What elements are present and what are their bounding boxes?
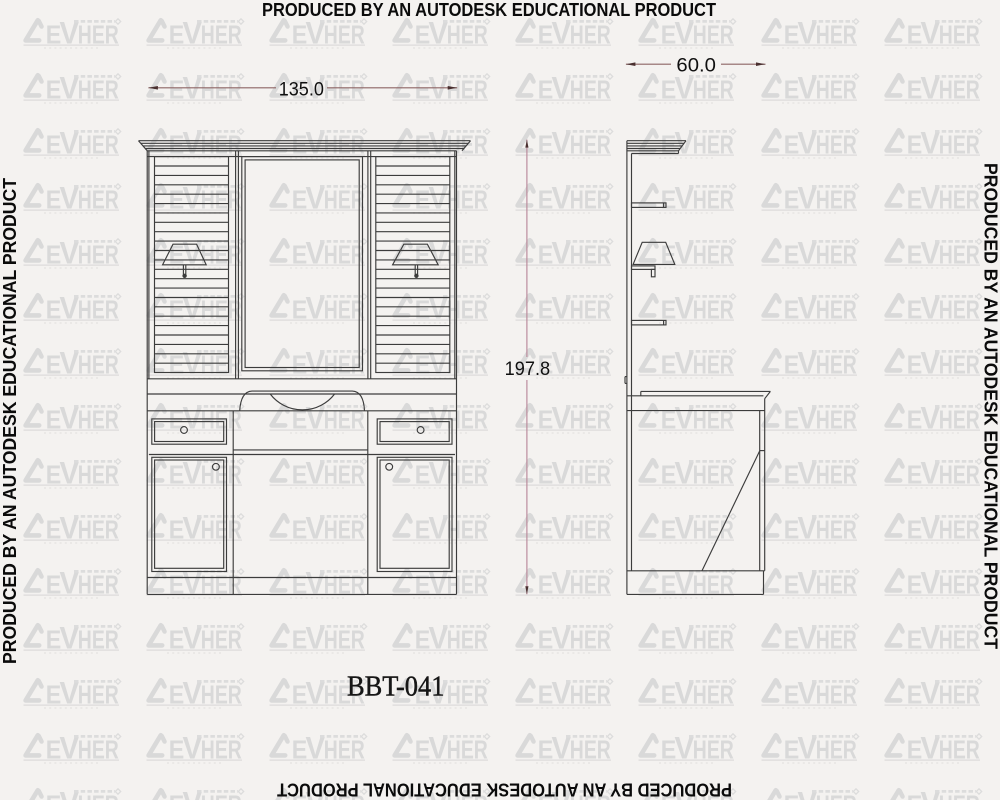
svg-text:BBT-041: BBT-041 xyxy=(347,672,445,703)
svg-text:PRODUCED BY AN AUTODESK EDUCAT: PRODUCED BY AN AUTODESK EDUCATIONAL PROD… xyxy=(262,0,717,20)
svg-text:197.8: 197.8 xyxy=(505,358,551,380)
svg-text:135.0: 135.0 xyxy=(279,78,324,100)
svg-text:PRODUCED BY AN AUTODESK EDUCAT: PRODUCED BY AN AUTODESK EDUCATIONAL PROD… xyxy=(0,177,20,664)
svg-text:PRODUCED BY AN AUTODESK EDUCAT: PRODUCED BY AN AUTODESK EDUCATIONAL PROD… xyxy=(276,780,732,800)
svg-text:60.0: 60.0 xyxy=(676,54,716,76)
svg-text:PRODUCED BY AN AUTODESK EDUCAT: PRODUCED BY AN AUTODESK EDUCATIONAL PROD… xyxy=(981,163,1000,650)
